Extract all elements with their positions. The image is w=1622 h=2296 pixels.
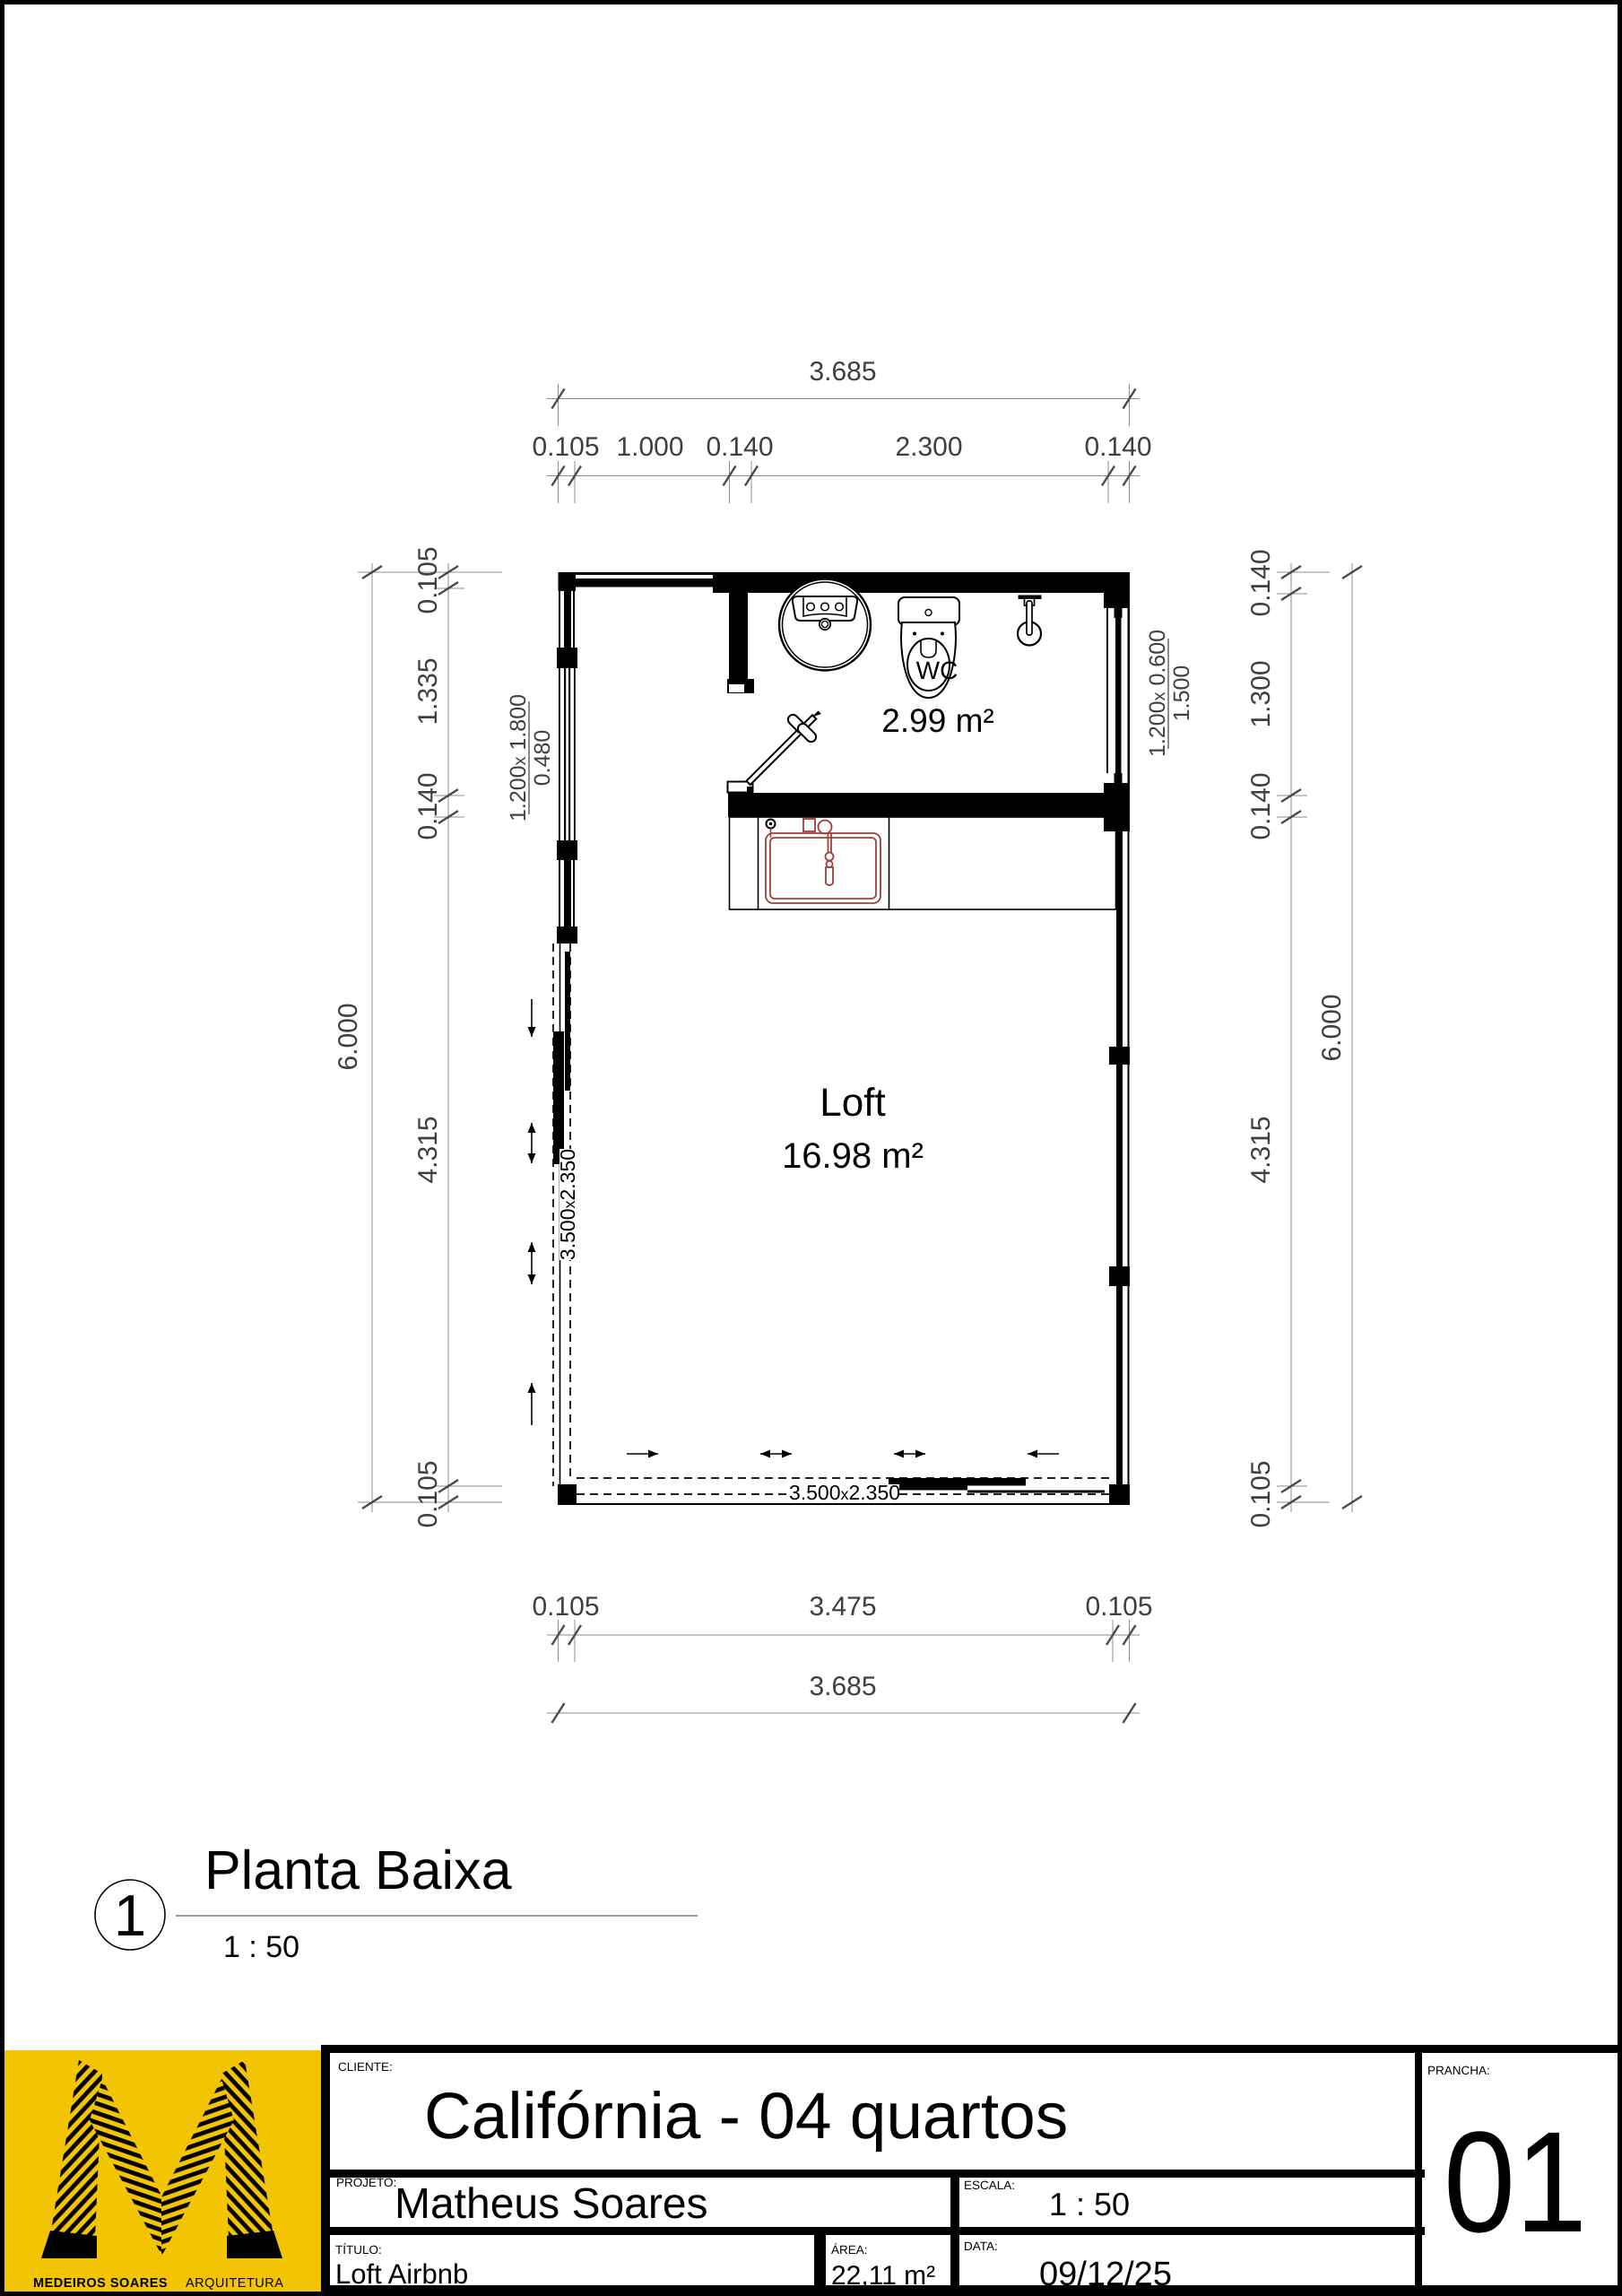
svg-text:1.200x 1.800: 1.200x 1.800 <box>506 694 531 822</box>
svg-text:0.105: 0.105 <box>413 1460 443 1527</box>
svg-text:09/12/25: 09/12/25 <box>1039 2256 1172 2293</box>
svg-text:0.105: 0.105 <box>413 546 443 613</box>
svg-text:01: 01 <box>1444 2101 1587 2262</box>
svg-text:0.105: 0.105 <box>1085 1592 1152 1622</box>
svg-text:MEDEIROS SOARES: MEDEIROS SOARES <box>33 2276 168 2291</box>
svg-text:0.105: 0.105 <box>532 1592 599 1622</box>
svg-text:1.500: 1.500 <box>1169 665 1194 722</box>
svg-text:1: 1 <box>114 1883 146 1948</box>
svg-text:DATA:: DATA: <box>964 2239 998 2253</box>
svg-text:Califórnia - 04 quartos: Califórnia - 04 quartos <box>424 2080 1068 2152</box>
svg-text:0.140: 0.140 <box>1084 432 1151 462</box>
svg-text:3.685: 3.685 <box>809 357 876 387</box>
svg-text:Loft: Loft <box>820 1081 885 1125</box>
svg-text:Loft Airbnb: Loft Airbnb <box>335 2258 468 2290</box>
svg-text:1 : 50: 1 : 50 <box>223 1930 299 1964</box>
svg-text:4.315: 4.315 <box>1246 1116 1276 1183</box>
svg-text:1.000: 1.000 <box>616 432 683 462</box>
svg-text:PRANCHA:: PRANCHA: <box>1427 2064 1490 2077</box>
svg-text:PROJETO:: PROJETO: <box>336 2176 396 2189</box>
svg-text:6.000: 6.000 <box>334 1003 363 1070</box>
svg-text:0.105: 0.105 <box>532 432 599 462</box>
svg-text:2.300: 2.300 <box>895 432 962 462</box>
svg-text:16.98 m²: 16.98 m² <box>782 1136 924 1176</box>
svg-text:1.200x 0.600: 1.200x 0.600 <box>1145 630 1170 757</box>
svg-text:TÍTULO:: TÍTULO: <box>335 2243 382 2257</box>
svg-text:4.315: 4.315 <box>413 1116 443 1183</box>
svg-text:0.140: 0.140 <box>706 432 773 462</box>
svg-text:0.105: 0.105 <box>1246 1460 1276 1527</box>
svg-text:ESCALA:: ESCALA: <box>964 2179 1015 2192</box>
svg-text:ARQUITETURA: ARQUITETURA <box>186 2276 283 2291</box>
svg-text:WC: WC <box>916 657 958 684</box>
svg-text:3.475: 3.475 <box>809 1592 876 1622</box>
svg-text:CLIENTE:: CLIENTE: <box>338 2060 393 2074</box>
svg-text:Planta Baixa: Planta Baixa <box>204 1839 512 1900</box>
svg-text:6.000: 6.000 <box>1317 994 1347 1061</box>
svg-text:0.140: 0.140 <box>1246 549 1276 616</box>
svg-text:2.99 m²: 2.99 m² <box>881 702 993 739</box>
svg-text:1.335: 1.335 <box>413 657 443 725</box>
svg-text:0.480: 0.480 <box>530 730 555 787</box>
svg-text:0.140: 0.140 <box>413 772 443 839</box>
svg-text:1 : 50: 1 : 50 <box>1049 2186 1130 2222</box>
svg-text:22,11 m²: 22,11 m² <box>831 2261 935 2291</box>
svg-text:0.140: 0.140 <box>1246 772 1276 839</box>
svg-text:ÁREA:: ÁREA: <box>831 2243 868 2257</box>
svg-text:1.300: 1.300 <box>1246 660 1276 727</box>
svg-text:3.685: 3.685 <box>809 1672 876 1701</box>
svg-text:Matheus Soares: Matheus Soares <box>395 2180 708 2228</box>
